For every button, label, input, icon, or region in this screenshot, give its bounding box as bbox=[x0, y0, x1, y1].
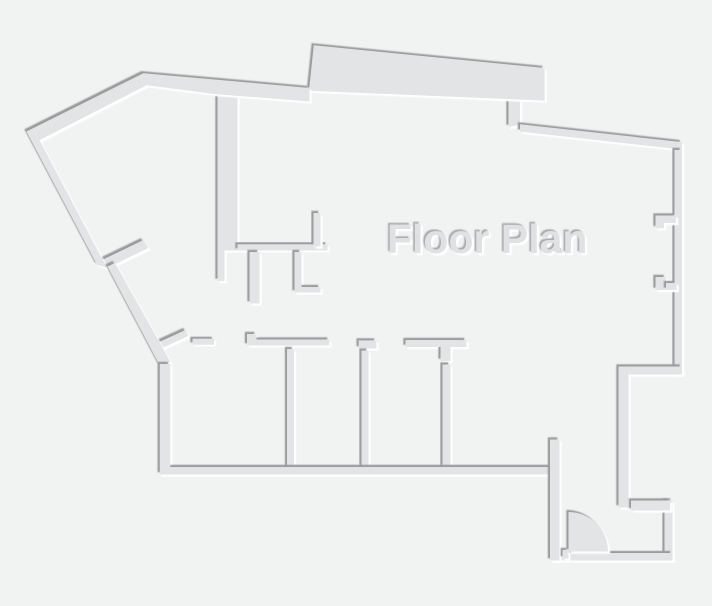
svg-text:Floor Plan: Floor Plan bbox=[387, 216, 587, 262]
